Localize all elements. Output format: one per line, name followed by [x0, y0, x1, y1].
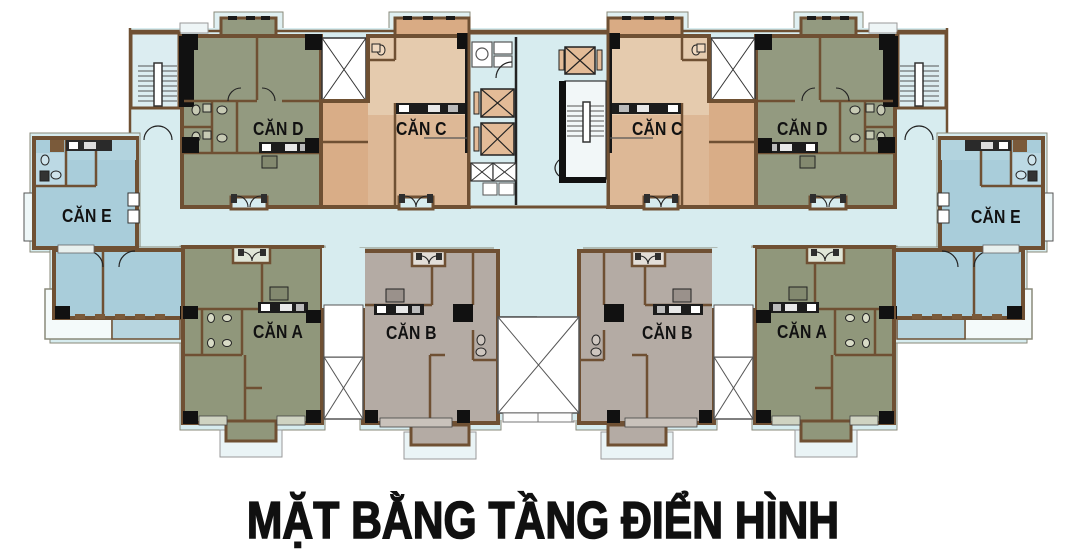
svg-text:CĂN B: CĂN B [386, 322, 437, 344]
svg-text:CĂN A: CĂN A [253, 321, 303, 343]
svg-text:CĂN D: CĂN D [777, 118, 828, 140]
svg-text:CĂN A: CĂN A [777, 321, 827, 343]
svg-text:MẶT BẰNG TẦNG ĐIỂN HÌNH: MẶT BẰNG TẦNG ĐIỂN HÌNH [247, 491, 839, 550]
svg-text:CĂN D: CĂN D [253, 118, 304, 140]
svg-text:CĂN B: CĂN B [642, 322, 693, 344]
svg-text:CĂN C: CĂN C [396, 118, 447, 140]
svg-text:CĂN E: CĂN E [62, 205, 112, 227]
svg-text:CĂN E: CĂN E [971, 206, 1021, 228]
svg-text:CĂN C: CĂN C [632, 118, 683, 140]
